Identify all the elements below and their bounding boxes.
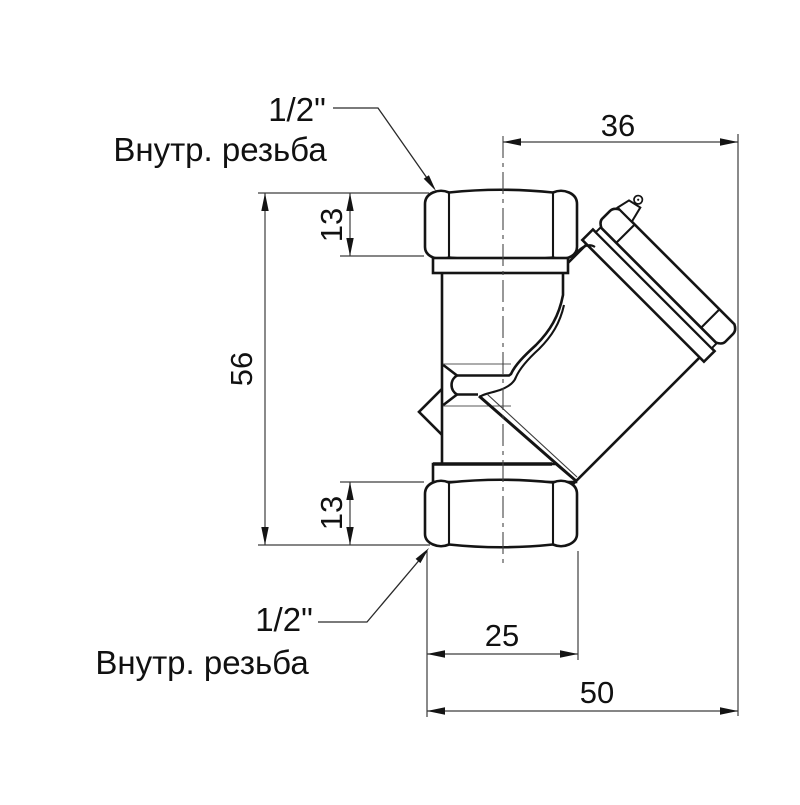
top-washer: [433, 258, 568, 273]
drawing-canvas: 36 56 13 13 25 50: [0, 0, 800, 800]
dim-25-text: 25: [485, 618, 519, 653]
dimension-56: 56: [224, 193, 430, 545]
top-port-size-text: 1/2": [268, 91, 326, 128]
bottom-port-size-text: 1/2": [255, 601, 313, 638]
dimension-13-bottom: 13: [314, 482, 424, 545]
dim-13-top-text: 13: [314, 208, 349, 242]
bottom-nut: [425, 480, 577, 548]
bottom-port-label: 1/2" Внутр. резьба: [95, 548, 429, 681]
dimension-13-top: 13: [314, 193, 424, 256]
top-port-label: 1/2" Внутр. резьба: [113, 91, 436, 191]
top-nut: [425, 190, 577, 261]
bottom-port-thread-text: Внутр. резьба: [95, 644, 309, 681]
dim-13-bottom-text: 13: [314, 496, 349, 530]
dim-56-text: 56: [224, 352, 259, 386]
strainer-drawing: 36 56 13 13 25 50: [0, 0, 800, 800]
dimension-50: 50: [427, 675, 738, 715]
dim-36-text: 36: [601, 108, 635, 143]
top-port-thread-text: Внутр. резьба: [113, 131, 327, 168]
dim-50-text: 50: [580, 675, 614, 710]
dimension-25: 25: [427, 551, 578, 717]
